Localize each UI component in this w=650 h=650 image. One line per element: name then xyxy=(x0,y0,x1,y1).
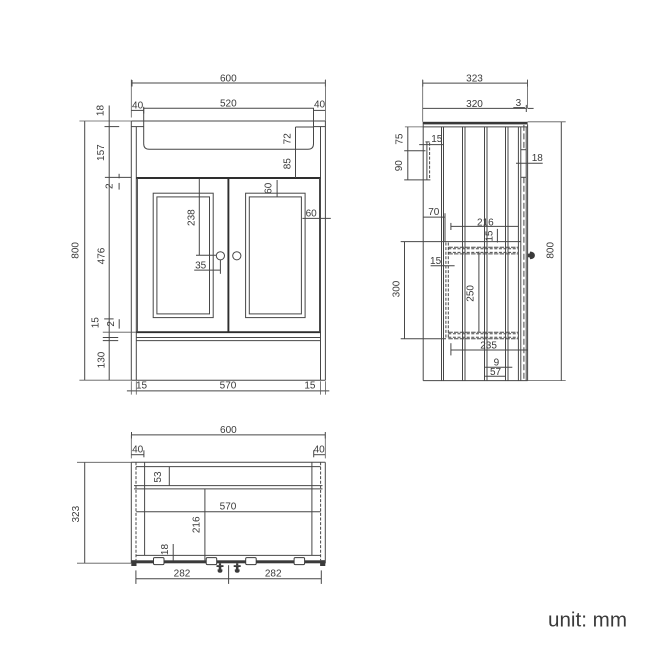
svg-text:15: 15 xyxy=(431,134,443,145)
svg-text:800: 800 xyxy=(71,242,82,259)
svg-text:157: 157 xyxy=(96,144,107,161)
svg-text:40: 40 xyxy=(314,445,326,456)
svg-text:570: 570 xyxy=(220,501,237,512)
svg-text:520: 520 xyxy=(220,99,237,110)
svg-text:unit: mm: unit: mm xyxy=(548,609,627,632)
svg-text:300: 300 xyxy=(391,280,402,297)
svg-text:320: 320 xyxy=(466,99,483,110)
svg-text:75: 75 xyxy=(394,133,405,145)
svg-text:600: 600 xyxy=(220,425,237,436)
svg-text:15: 15 xyxy=(484,230,495,242)
svg-text:35: 35 xyxy=(195,260,207,271)
svg-text:800: 800 xyxy=(545,242,556,259)
svg-text:40: 40 xyxy=(132,445,144,456)
svg-text:2: 2 xyxy=(105,183,116,189)
svg-text:130: 130 xyxy=(96,351,107,368)
svg-text:216: 216 xyxy=(477,217,494,228)
svg-text:282: 282 xyxy=(174,569,191,580)
svg-text:40: 40 xyxy=(314,100,326,111)
svg-text:60: 60 xyxy=(306,208,318,219)
svg-text:250: 250 xyxy=(466,285,477,302)
svg-text:3: 3 xyxy=(516,98,522,109)
svg-text:40: 40 xyxy=(132,100,144,111)
svg-text:15: 15 xyxy=(91,317,102,329)
svg-text:2: 2 xyxy=(106,321,117,327)
svg-text:53: 53 xyxy=(153,471,164,483)
svg-text:70: 70 xyxy=(428,207,440,218)
svg-text:18: 18 xyxy=(96,105,107,117)
svg-text:18: 18 xyxy=(532,153,544,164)
svg-text:600: 600 xyxy=(220,74,237,85)
svg-text:570: 570 xyxy=(220,380,237,391)
svg-text:57: 57 xyxy=(490,367,502,378)
svg-text:15: 15 xyxy=(304,380,316,391)
svg-text:216: 216 xyxy=(192,516,203,533)
svg-text:15: 15 xyxy=(430,256,442,267)
svg-text:72: 72 xyxy=(282,133,293,145)
svg-text:18: 18 xyxy=(160,544,171,556)
svg-text:282: 282 xyxy=(265,569,282,580)
svg-text:85: 85 xyxy=(283,158,294,170)
svg-text:323: 323 xyxy=(71,505,82,522)
svg-text:90: 90 xyxy=(394,160,405,172)
svg-text:476: 476 xyxy=(96,247,107,264)
svg-text:15: 15 xyxy=(136,380,148,391)
svg-text:60: 60 xyxy=(264,182,275,194)
svg-text:235: 235 xyxy=(480,340,497,351)
svg-text:323: 323 xyxy=(466,74,483,85)
svg-text:238: 238 xyxy=(187,209,198,226)
